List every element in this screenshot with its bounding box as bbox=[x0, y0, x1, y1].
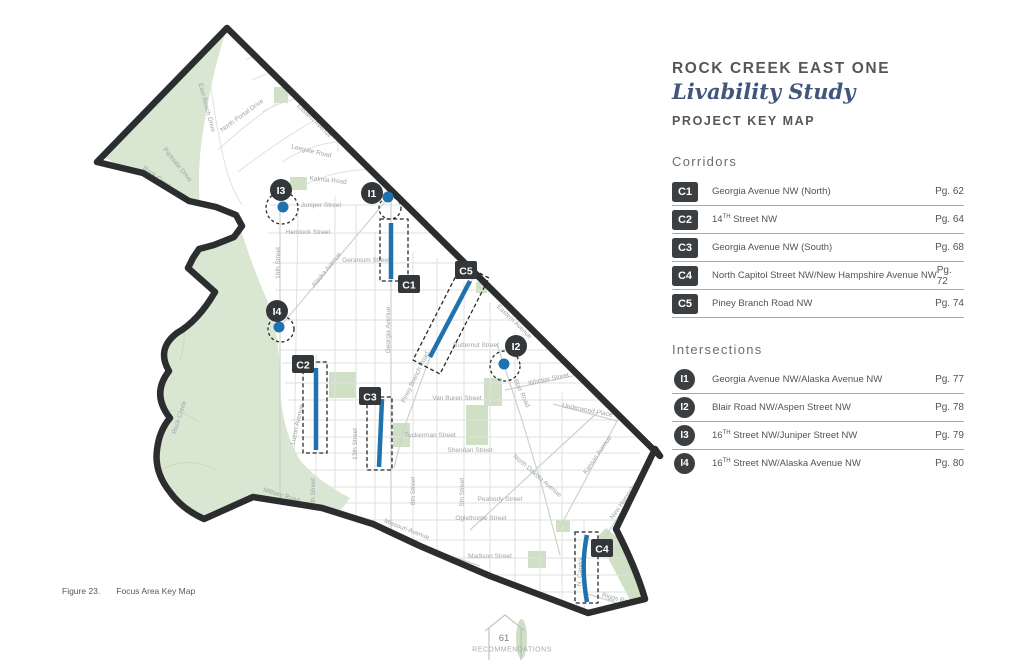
intersection-name: 16TH Street NW/Alaska Avenue NW bbox=[712, 458, 935, 469]
street-label: Tuckerman Street bbox=[404, 432, 456, 439]
corridor-marker-label: C3 bbox=[363, 392, 377, 404]
name-sup: TH bbox=[723, 214, 731, 220]
page-ref: Pg. 62 bbox=[935, 186, 964, 197]
intersection-name: Blair Road NW/Aspen Street NW bbox=[712, 402, 935, 413]
intersection-dot-i4 bbox=[274, 322, 285, 333]
corridor-badge: C2 bbox=[672, 210, 698, 230]
corridor-marker-label: C4 bbox=[595, 544, 609, 556]
page-ref: Pg. 64 bbox=[935, 214, 964, 225]
page-title: PROJECT KEY MAP bbox=[672, 114, 964, 128]
name-part: 16 bbox=[712, 458, 723, 469]
street-label: Oglethorpe Street bbox=[455, 515, 507, 522]
corridor-marker-label: C2 bbox=[296, 360, 310, 372]
intersection-marker-label: I1 bbox=[368, 188, 377, 200]
corridor-name: 14TH Street NW bbox=[712, 214, 935, 225]
corridor-badge: C3 bbox=[672, 238, 698, 258]
street-label: Kalmia Road bbox=[309, 175, 347, 186]
corridor-badge: C4 bbox=[672, 266, 698, 286]
street-label: Madison Street bbox=[468, 553, 512, 560]
corridor-name: Georgia Avenue NW (North) bbox=[712, 186, 935, 197]
page-ref: Pg. 74 bbox=[935, 298, 964, 309]
intersection-marker-label: I2 bbox=[512, 341, 521, 353]
intersection-badge: I1 bbox=[674, 369, 695, 390]
page-ref: Pg. 77 bbox=[935, 374, 964, 385]
street-label: Eastern Avenue bbox=[295, 103, 333, 140]
corridor-name: Piney Branch Road NW bbox=[712, 298, 935, 309]
corridor-line-c3 bbox=[379, 399, 382, 467]
page-footer: 61 RECOMMENDATIONS bbox=[472, 615, 552, 660]
table-row-i1: I1 Georgia Avenue NW/Alaska Avenue NW Pg… bbox=[672, 366, 964, 394]
page-number: 61 bbox=[499, 633, 510, 644]
street-label: Peabody Street bbox=[478, 496, 523, 503]
name-part: Georgia Avenue NW (South) bbox=[712, 242, 832, 253]
intersection-dot-i3 bbox=[278, 202, 289, 213]
legend-panel: ROCK CREEK EAST ONE Livability Study PRO… bbox=[672, 60, 964, 477]
street-label: Van Buren Street bbox=[432, 395, 482, 402]
street-label: 5th Street bbox=[459, 478, 466, 506]
page-ref: Pg. 79 bbox=[935, 430, 964, 441]
table-row-c2: C2 14TH Street NW Pg. 64 bbox=[672, 206, 964, 234]
name-part: 16 bbox=[712, 430, 723, 441]
figure-title: Focus Area Key Map bbox=[116, 586, 195, 596]
street-label: Geranium Street bbox=[342, 257, 390, 264]
page-ref: Pg. 68 bbox=[935, 242, 964, 253]
table-row-i4: I4 16TH Street NW/Alaska Avenue NW Pg. 8… bbox=[672, 450, 964, 477]
street-label: Hemlock Street bbox=[286, 229, 331, 236]
figure-caption: Figure 23.Focus Area Key Map bbox=[62, 586, 195, 596]
street-label: 16th Street bbox=[275, 247, 282, 279]
corridors-heading: Corridors bbox=[672, 154, 964, 169]
name-part: 14 bbox=[712, 214, 723, 225]
page-ref: Pg. 80 bbox=[935, 458, 964, 469]
street-label: Sheridan Street bbox=[447, 447, 492, 454]
page-ref: Pg. 78 bbox=[935, 402, 964, 413]
street-label: Whittier Street bbox=[528, 372, 570, 387]
figure-number: Figure 23. bbox=[62, 586, 100, 596]
street-label: 13th Street bbox=[352, 428, 359, 460]
intersection-marker-label: I4 bbox=[273, 306, 282, 318]
intersection-dot-i2 bbox=[499, 359, 510, 370]
corridor-badge: C5 bbox=[672, 294, 698, 314]
intersection-badge: I2 bbox=[674, 397, 695, 418]
intersection-name: Georgia Avenue NW/Alaska Avenue NW bbox=[712, 374, 935, 385]
street-label: Alaska Avenue bbox=[311, 251, 344, 289]
table-row-i2: I2 Blair Road NW/Aspen Street NW Pg. 78 bbox=[672, 394, 964, 422]
name-part: Blair Road NW/Aspen Street NW bbox=[712, 402, 851, 413]
intersection-badge: I4 bbox=[674, 453, 695, 474]
corridor-line-c4 bbox=[584, 535, 587, 602]
name-part: North Capitol Street NW/New Hampshire Av… bbox=[712, 270, 937, 281]
name-part: Street NW/Juniper Street NW bbox=[731, 430, 858, 441]
page-section-label: RECOMMENDATIONS bbox=[472, 647, 552, 654]
corridor-marker-label: C1 bbox=[402, 280, 416, 292]
table-row-c5: C5 Piney Branch Road NW Pg. 74 bbox=[672, 290, 964, 318]
page-ref: Pg. 72 bbox=[937, 265, 964, 287]
street-label: North Dakota Avenue bbox=[511, 453, 562, 499]
name-part: Street NW bbox=[731, 214, 777, 225]
name-sup: TH bbox=[723, 430, 731, 436]
street-label: Butternut Street bbox=[453, 342, 499, 349]
table-row-c3: C3 Georgia Avenue NW (South) Pg. 68 bbox=[672, 234, 964, 262]
name-part: Piney Branch Road NW bbox=[712, 298, 812, 309]
intersections-heading: Intersections bbox=[672, 342, 964, 357]
intersection-dot-i1 bbox=[383, 192, 394, 203]
intersection-badge: I3 bbox=[674, 425, 695, 446]
corridor-badge: C1 bbox=[672, 182, 698, 202]
name-part: Georgia Avenue NW (North) bbox=[712, 186, 831, 197]
street-label: Kansas Avenue bbox=[582, 434, 614, 475]
focus-area-outline bbox=[380, 219, 408, 281]
street-label: Juniper Street bbox=[301, 202, 342, 209]
name-part: Street NW/Alaska Avenue NW bbox=[731, 458, 861, 469]
corridor-name: Georgia Avenue NW (South) bbox=[712, 242, 935, 253]
table-row-c4: C4 North Capitol Street NW/New Hampshire… bbox=[672, 262, 964, 290]
corridor-name: North Capitol Street NW/New Hampshire Av… bbox=[712, 270, 937, 281]
study-title: ROCK CREEK EAST ONE bbox=[672, 60, 964, 78]
name-part: Georgia Avenue NW/Alaska Avenue NW bbox=[712, 374, 882, 385]
study-subtitle: Livability Study bbox=[672, 79, 964, 104]
name-sup: TH bbox=[723, 458, 731, 464]
table-row-i3: I3 16TH Street NW/Juniper Street NW Pg. … bbox=[672, 422, 964, 450]
street-label: 8th Street bbox=[410, 477, 417, 505]
corridor-marker-label: C5 bbox=[459, 266, 473, 278]
street-label: Leegate Road bbox=[291, 144, 333, 160]
table-row-c1: C1 Georgia Avenue NW (North) Pg. 62 bbox=[672, 178, 964, 206]
street-label: Georgia Avenue bbox=[385, 306, 392, 353]
intersection-marker-label: I3 bbox=[277, 185, 286, 197]
intersection-name: 16TH Street NW/Juniper Street NW bbox=[712, 430, 935, 441]
